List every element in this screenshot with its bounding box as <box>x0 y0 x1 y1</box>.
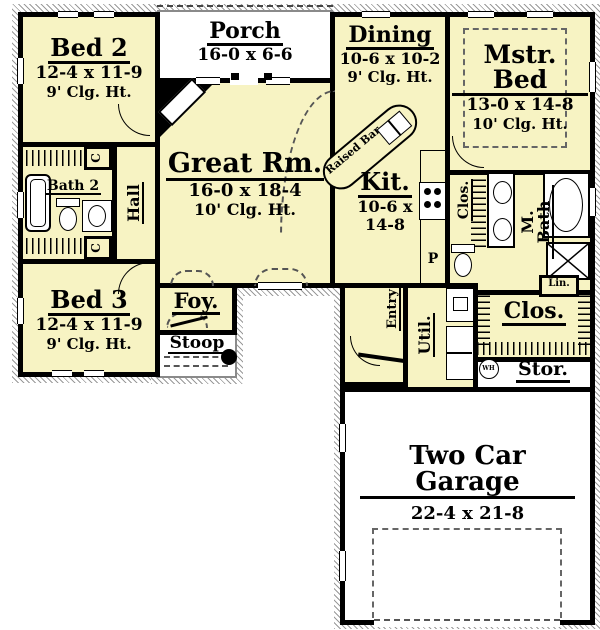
garage-title: Two Car Garage <box>360 443 575 499</box>
master-closet-rod-hatch <box>471 177 486 247</box>
foyer-label: Foy. <box>166 290 226 315</box>
bed2-ceiling: 9' Clg. Ht. <box>46 83 131 101</box>
master-bed-ceiling: 10' Clg. Ht. <box>472 115 568 133</box>
util-sink-cabinet <box>446 288 474 322</box>
utility-title: Util. <box>417 313 435 356</box>
shower-x-icon <box>548 244 588 278</box>
garage-window-1 <box>339 424 346 452</box>
burner <box>434 188 441 195</box>
dining-ceiling: 9' Clg. Ht. <box>347 68 432 86</box>
left-window-bed2 <box>17 58 24 84</box>
garage-dims: 22-4 x 21-8 <box>411 503 524 524</box>
porch-post-2 <box>264 73 272 80</box>
bed3-window-1 <box>52 370 72 377</box>
garage-door-opening <box>374 615 560 627</box>
kitchen-dims-1: 10-6 x <box>357 197 412 216</box>
walkin-closet-label: Clos. <box>478 300 590 326</box>
water-heater-circle: WH <box>479 359 499 379</box>
master-wc-tank <box>451 244 475 253</box>
kitchen-title: Kit. <box>358 170 411 198</box>
master-window-1 <box>468 11 494 18</box>
closet-c2-label: C <box>90 236 106 260</box>
master-bath-title: M. Bath <box>520 185 554 259</box>
closet2-rod-hatch <box>26 238 82 254</box>
great-room-dims: 16-0 x 18-4 <box>188 180 301 201</box>
great-room-title: Great Rm. <box>166 150 324 181</box>
bed2-window-2 <box>94 11 114 18</box>
bed2-dims: 12-4 x 11-9 <box>35 63 142 83</box>
dining-title: Dining <box>346 24 433 50</box>
foyer-title: Foy. <box>172 290 221 315</box>
walkin-rod-bottom <box>477 342 591 355</box>
entry-label: Entry <box>382 283 396 335</box>
dining-dims: 10-6 x 10-2 <box>340 49 441 68</box>
greatroom-south-window <box>258 282 302 290</box>
hall-title: Hall <box>126 182 144 224</box>
master-bed-dims: 13-0 x 14-8 <box>466 95 573 115</box>
master-right-window <box>589 62 596 92</box>
storage-label: Stor. <box>500 360 586 383</box>
bed2-window-1 <box>58 11 78 18</box>
bath2-vanity <box>82 200 112 232</box>
dining-label: Dining 10-6 x 10-2 9' Clg. Ht. <box>338 24 442 86</box>
closet1-rod-hatch <box>26 150 82 166</box>
entry-title: Entry <box>386 287 401 331</box>
water-heater-label: WH <box>480 366 497 373</box>
master-bed-title: Mstr. Bed <box>452 42 588 96</box>
master-window-2 <box>527 11 553 18</box>
left-window-bath2 <box>17 192 24 218</box>
porch-dims: 16-0 x 6-6 <box>197 45 292 65</box>
foyer-opening-arc <box>170 270 214 286</box>
bed3-dims: 12-4 x 11-9 <box>35 315 142 335</box>
master-sink-1 <box>493 181 512 204</box>
bath2-label: Bath 2 <box>44 176 102 195</box>
kitchen-label: Kit. 10-6 x 14-8 <box>340 170 430 234</box>
great-room-label: Great Rm. 16-0 x 18-4 10' Clg. Ht. <box>165 150 325 219</box>
master-vanity <box>487 172 515 248</box>
bed2-label: Bed 2 12-4 x 11-9 9' Clg. Ht. <box>25 36 153 101</box>
porch-title: Porch <box>207 20 283 46</box>
washer-dryer <box>446 326 474 380</box>
stoop-step-dash-1 <box>164 356 228 358</box>
bath2-toilet-bowl <box>59 207 77 231</box>
garage-label: Two Car Garage 22-4 x 21-8 <box>360 443 575 530</box>
bath2-title: Bath 2 <box>45 179 101 195</box>
garage-window-2 <box>339 551 346 581</box>
porch-wall-window-1 <box>196 77 220 85</box>
bed3-ceiling: 9' Clg. Ht. <box>46 335 131 353</box>
garage-bay-dashed <box>372 528 562 618</box>
master-closet-label: Clos. <box>454 173 468 227</box>
master-bath-label: M. Bath <box>520 185 536 259</box>
floor-plan: Raised Bar <box>0 0 600 630</box>
washer-dryer-divider <box>447 352 472 354</box>
pantry-label: P <box>423 252 443 268</box>
porch-label: Porch 16-0 x 6-6 <box>170 20 320 65</box>
master-sink-2 <box>493 218 512 241</box>
utility-label: Util. <box>416 313 432 357</box>
bed3-title: Bed 3 <box>48 288 129 316</box>
bed3-label: Bed 3 12-4 x 11-9 9' Clg. Ht. <box>25 288 153 353</box>
master-closet-title: Clos. <box>457 179 473 222</box>
hall-wall <box>112 147 117 264</box>
util-sink <box>453 297 468 311</box>
hall-label: Hall <box>125 180 143 226</box>
linen-label: Lin. <box>541 278 577 289</box>
garage-door-dashed-line <box>374 619 560 621</box>
bed2-title: Bed 2 <box>48 36 129 64</box>
great-room-ceiling: 10' Clg. Ht. <box>194 200 296 219</box>
porch-roof-dashed-line <box>157 5 333 7</box>
master-tub-basin <box>549 178 583 232</box>
master-wc-bowl <box>454 253 472 277</box>
closet-c1-label: C <box>90 146 106 170</box>
left-window-bed3 <box>17 298 24 324</box>
master-bed-label: Mstr. Bed 13-0 x 14-8 10' Clg. Ht. <box>452 42 588 133</box>
storage-title: Stor. <box>516 360 570 383</box>
bed3-window-2 <box>84 370 104 377</box>
dining-window <box>362 11 390 18</box>
porch-post-1 <box>231 73 239 80</box>
walkin-closet-title: Clos. <box>502 300 567 326</box>
kitchen-dims-2: 14-8 <box>365 215 405 234</box>
stoop-step-dash-2 <box>164 365 228 367</box>
stoop-label: Stoop <box>162 334 232 354</box>
bath2-sink <box>88 205 106 227</box>
mbath-right-window <box>589 188 596 216</box>
bath2-toilet-tank <box>56 198 80 207</box>
stoop-title: Stoop <box>168 335 227 354</box>
burner <box>434 201 441 208</box>
